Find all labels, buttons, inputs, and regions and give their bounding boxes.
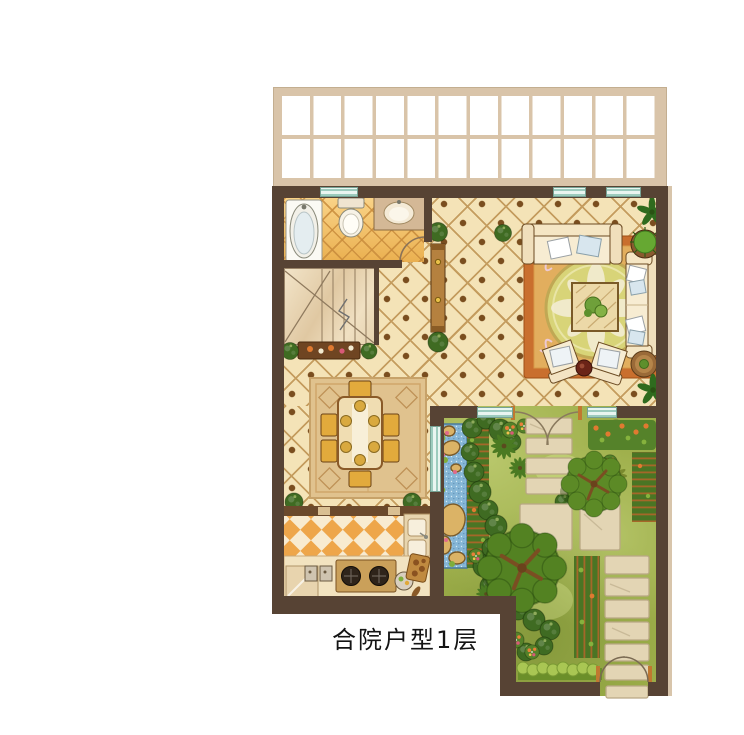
wall-garden-bottom-b [648, 682, 668, 696]
window-garden-1 [477, 407, 513, 418]
window-living-2 [606, 187, 641, 197]
window-garden-2 [587, 407, 617, 418]
window-living-1 [553, 187, 586, 197]
dining-table [338, 397, 382, 469]
plan-caption: 合院户型1层 [332, 620, 479, 655]
wall-kitchen-bottom [272, 596, 516, 614]
coffee-table [572, 283, 618, 331]
hedge-row-bottom [517, 662, 602, 680]
floorplan-canvas: 合院户型1层 [0, 0, 744, 735]
wall-stair-side [374, 260, 379, 345]
window-bathroom [320, 187, 358, 197]
side-table [631, 351, 657, 377]
drum-table [576, 360, 592, 376]
stove [336, 560, 396, 592]
bathroom-door-arc [400, 237, 425, 262]
loveseat [522, 224, 622, 264]
hall-partition-cabinet [431, 244, 445, 332]
toilet [338, 198, 364, 237]
wall-garden-top-b [616, 406, 658, 418]
sink-vanity [374, 196, 426, 230]
staircase [285, 269, 374, 344]
stair-console-planter [298, 342, 360, 359]
bathtub [286, 200, 322, 262]
door-post [578, 406, 582, 420]
sofa [626, 252, 658, 358]
wall-garden-bottom-a [500, 682, 600, 696]
wall-left [272, 198, 284, 614]
wall-garden-top-a [430, 406, 478, 418]
wall-right [656, 198, 668, 696]
window-kitchen-side [430, 426, 441, 492]
wall-bathroom-bottom [284, 260, 402, 268]
wall-bathroom-right [424, 198, 432, 242]
outer-edge-strip [668, 186, 672, 696]
trellis-hedge-vertical [574, 556, 600, 658]
